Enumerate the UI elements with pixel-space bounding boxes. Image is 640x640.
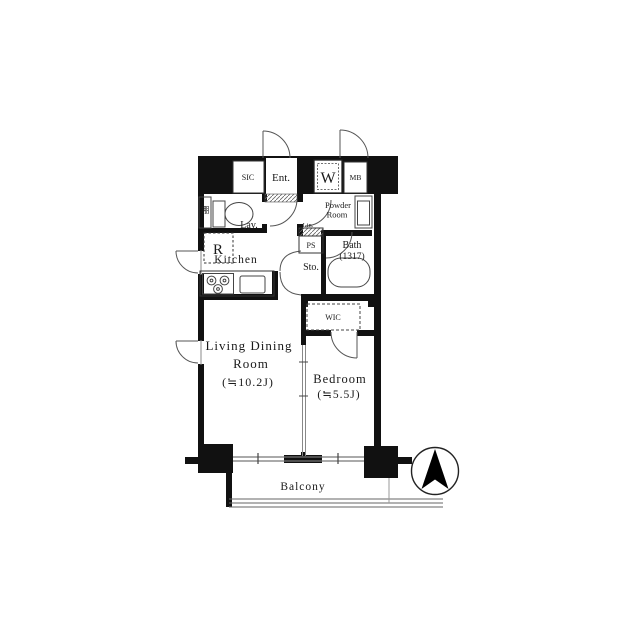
label-shelf: 棚 [201,205,210,215]
walls [185,156,412,507]
label-bath-size: (1317) [339,251,364,262]
label-bedroom: Bedroom [313,372,367,386]
label-linen: Lin. [303,222,314,229]
label-bedroom-size: (≒5.5J) [317,389,360,401]
label-balcony: Balcony [280,481,325,493]
floor-plan-drawing: SIC Ent. W MB Powder Room Bath (1317) 棚 … [0,0,640,640]
sink-icon [240,276,265,293]
label-living-size: (≒10.2J) [222,375,274,389]
bathtub-icon [328,258,370,287]
label-lavatory: Lav. [240,220,257,231]
label-sic: SIC [242,173,254,182]
floor-plan-image: SIC Ent. W MB Powder Room Bath (1317) 棚 … [0,0,640,640]
label-living-1: Living Dining [205,338,292,353]
label-pipe-space: PS [307,241,316,250]
label-living-2: Room [233,356,269,371]
wic-door [331,332,357,358]
linen-shelf [299,228,323,236]
meter-box-door [340,130,368,158]
sliding-partition-ld-bedroom [299,345,308,456]
label-wic: WIC [325,313,341,322]
vanity-icon [355,196,372,228]
entrance-door [263,131,290,158]
label-powder-room-1: Powder [325,200,351,210]
label-washing-machine: W [320,170,336,187]
kitchen-counter [200,271,274,296]
label-entrance: Ent. [272,172,290,184]
label-kitchen: Kitchen [214,254,257,266]
label-powder-room-2: Room [327,210,348,220]
label-bath: Bath [343,240,362,251]
entrance-step [265,194,297,202]
label-storage: Sto. [303,262,319,273]
kitchen-window [176,250,201,275]
compass [412,448,459,495]
balcony-railing [229,478,443,507]
label-meter-box: MB [350,173,362,182]
stove-icon [203,274,234,295]
lavatory-door [270,199,297,226]
living-window [176,340,201,365]
storage-doors [280,251,301,295]
